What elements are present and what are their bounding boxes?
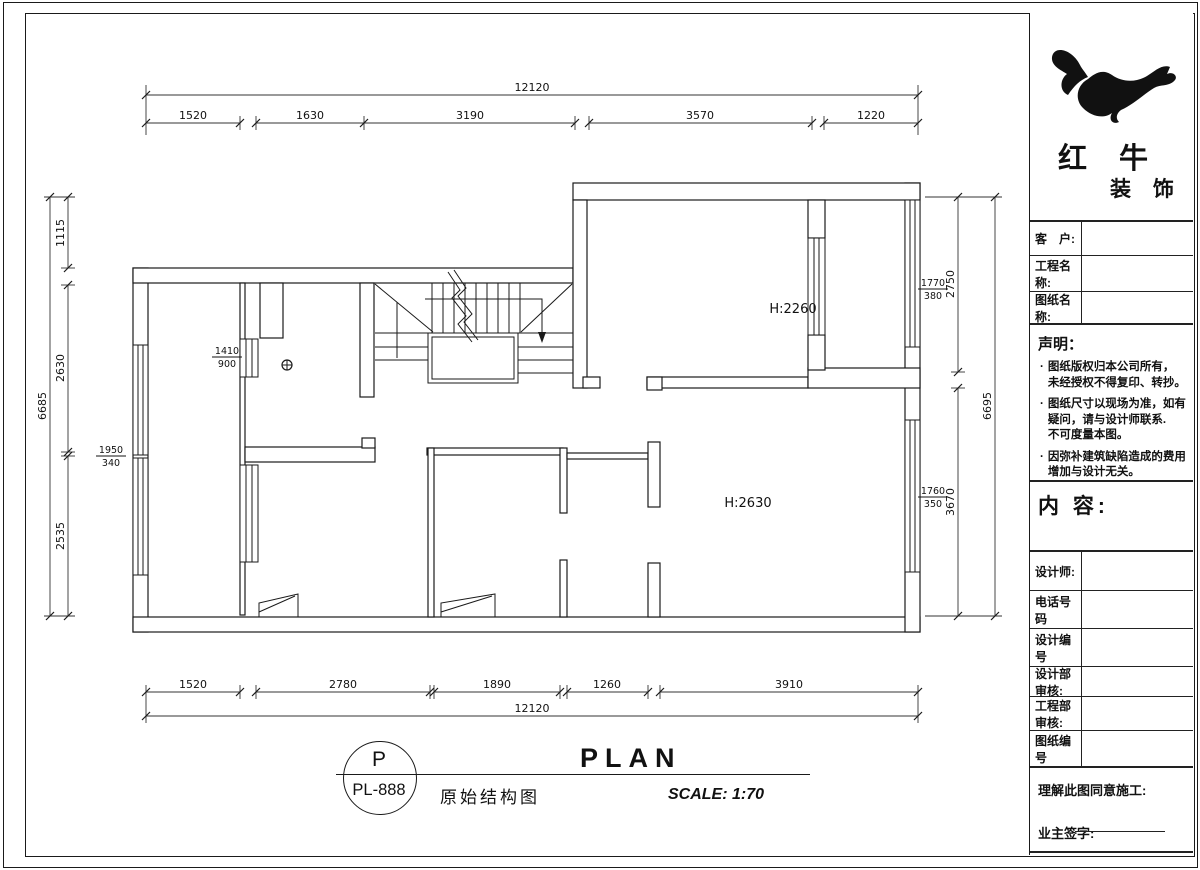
content-label: 内 容: [1038,490,1193,520]
logo-cell: 红 牛 装 饰 [1030,13,1193,222]
statement-item: 图纸尺寸以现场为准，如有 疑问，请与设计师联系. 不可度量本图。 [1048,397,1186,444]
design-review-label: 设计部审核: [1030,667,1082,696]
room-height-label: H:2260 [769,302,816,317]
fraction-den: 340 [102,458,120,469]
fraction-den: 900 [218,359,236,370]
row-phone: 电话号码 [1030,591,1193,629]
dim-bottom-seg: 3910 [775,678,803,691]
agree-construction-label: 理解此图同意施工: [1038,780,1193,799]
brand-bull-logo-icon [1046,41,1181,136]
dim-bottom-seg: 1520 [179,678,207,691]
dim-top-seg: 3190 [456,109,484,122]
fraction-num: 1410 [215,346,239,357]
content-cell: 内 容: [1030,482,1193,552]
design-no-label: 设计编号 [1030,629,1082,666]
field-row-project-name: 工程名称: [1030,256,1193,292]
row-designer: 设计师: [1030,552,1193,591]
dim-top-seg: 1630 [296,109,324,122]
customer-label: 客 户: [1030,222,1082,255]
field-row-drawing-name: 图纸名称: [1030,292,1193,325]
engineering-review-label: 工程部审核: [1030,697,1082,730]
owner-signature-label: 业主签字: [1038,823,1193,842]
row-design-no: 设计编号 [1030,629,1193,667]
project-name-label: 工程名称: [1030,256,1082,291]
fraction-den: 380 [924,291,942,302]
dim-top-total: 12120 [515,81,550,94]
drawing-no-label: 图纸编号 [1030,731,1082,766]
dim-right-total: 6695 [981,392,994,420]
floor-plan: 12120 1520 1630 3190 3570 1220 1520 2780… [0,0,1200,870]
dim-left-total: 6685 [36,392,49,420]
scale-label: SCALE: 1:70 [668,786,764,804]
drawing-name: 原始结构图 [440,783,600,808]
statement-title: 声明： [1038,333,1187,354]
drawing-number: PL-888 [341,781,417,800]
phone-label: 电话号码 [1030,591,1082,628]
walls [133,183,920,632]
drawing-sheet: 12120 1520 1630 3190 3570 1220 1520 2780… [0,0,1200,870]
statement-item: 图纸版权归本公司所有， 未经授权不得复印、转抄。 [1048,360,1186,391]
drain-symbol [282,360,292,370]
staircase [375,270,573,383]
dim-bottom-seg: 1260 [593,678,621,691]
signature-cell: 理解此图同意施工: 业主签字: [1030,768,1193,853]
room-labels: H:2260 H:2630 [724,302,816,511]
row-design-review: 设计部审核: [1030,667,1193,697]
stair-down-arrow-icon [538,332,546,343]
fraction-den: 350 [924,499,942,510]
fraction-num: 1760 [921,486,945,497]
brand-subname: 装 饰 [1110,173,1182,203]
dim-top-seg: 3570 [686,109,714,122]
row-drawing-no: 图纸编号 [1030,731,1193,768]
fraction-num: 1770 [921,278,945,289]
fraction-num: 1950 [99,445,123,456]
brand-name: 红 牛 [1058,135,1160,177]
dim-left-seg: 1115 [54,219,67,247]
room-height-label: H:2630 [724,496,771,511]
dim-left-seg: 2535 [54,522,67,550]
field-row-customer: 客 户: [1030,222,1193,256]
dim-right-seg: 3670 [944,488,957,516]
plan-title: PLAN [580,743,682,774]
dim-right-seg: 2750 [944,270,957,298]
drawing-name-label: 图纸名称: [1030,292,1082,323]
signature-line[interactable] [1075,831,1165,832]
dim-bottom-seg: 1890 [483,678,511,691]
dim-top-seg: 1220 [857,109,885,122]
statement-cell: 声明： 图纸版权归本公司所有， 未经授权不得复印、转抄。 图纸尺寸以现场为准，如… [1030,325,1193,482]
dim-bottom-seg: 2780 [329,678,357,691]
door-thresholds [259,594,495,617]
drawing-number-letter: P [343,748,415,772]
designer-label: 设计师: [1030,552,1082,590]
statement-item: 因弥补建筑缺陷造成的费用 增加与设计无关。 [1048,450,1186,481]
row-engineering-review: 工程部审核: [1030,697,1193,731]
dim-bottom-total: 12120 [515,702,550,715]
dim-left-seg: 2630 [54,354,67,382]
dim-top-seg: 1520 [179,109,207,122]
